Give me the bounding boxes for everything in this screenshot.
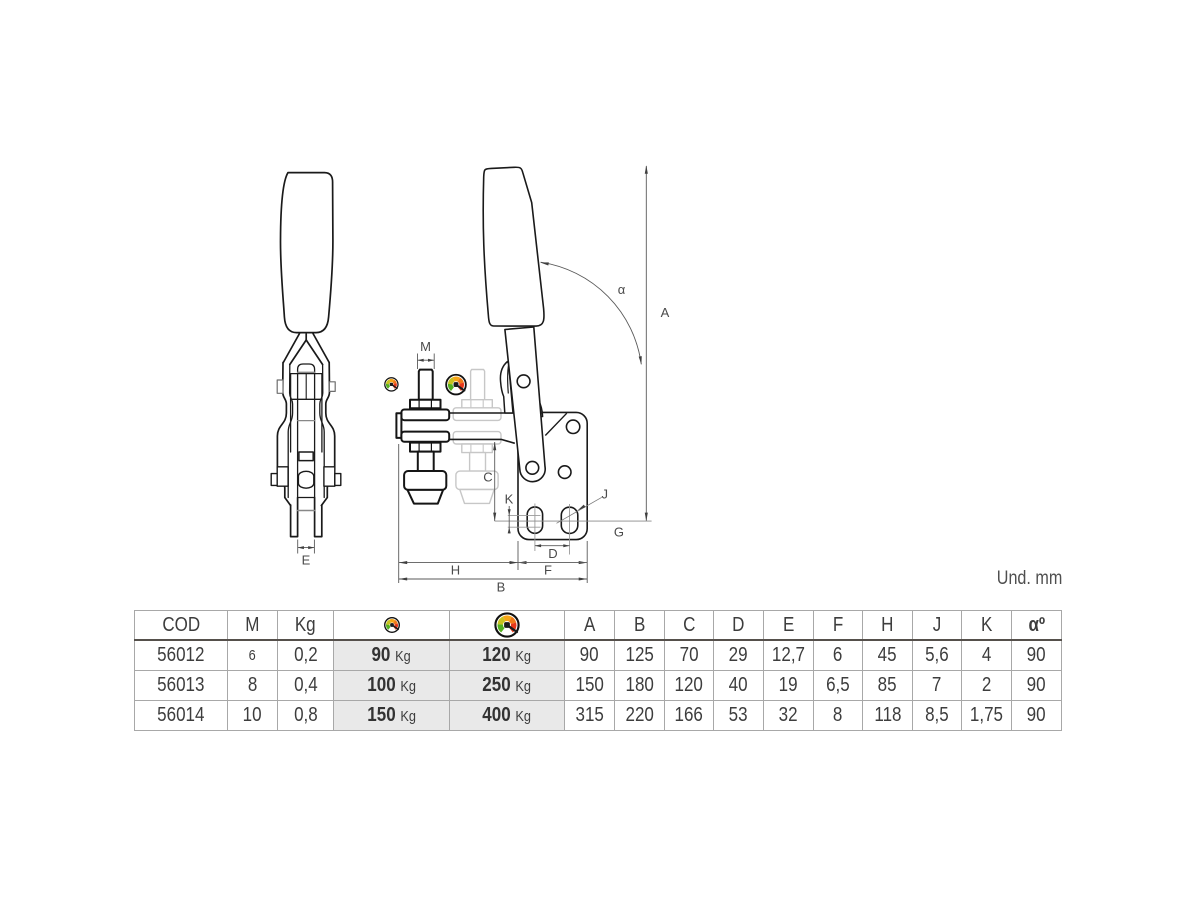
svg-text:G: G xyxy=(614,525,624,540)
svg-text:M: M xyxy=(420,339,431,354)
svg-text:E: E xyxy=(302,553,311,568)
svg-text:α: α xyxy=(618,282,626,297)
svg-text:K: K xyxy=(505,492,514,507)
svg-text:D: D xyxy=(548,546,557,561)
svg-text:C: C xyxy=(483,470,492,485)
svg-text:F: F xyxy=(544,563,552,578)
svg-text:J: J xyxy=(601,487,608,502)
svg-text:H: H xyxy=(451,563,460,578)
svg-text:B: B xyxy=(497,580,506,595)
svg-text:A: A xyxy=(661,305,670,320)
